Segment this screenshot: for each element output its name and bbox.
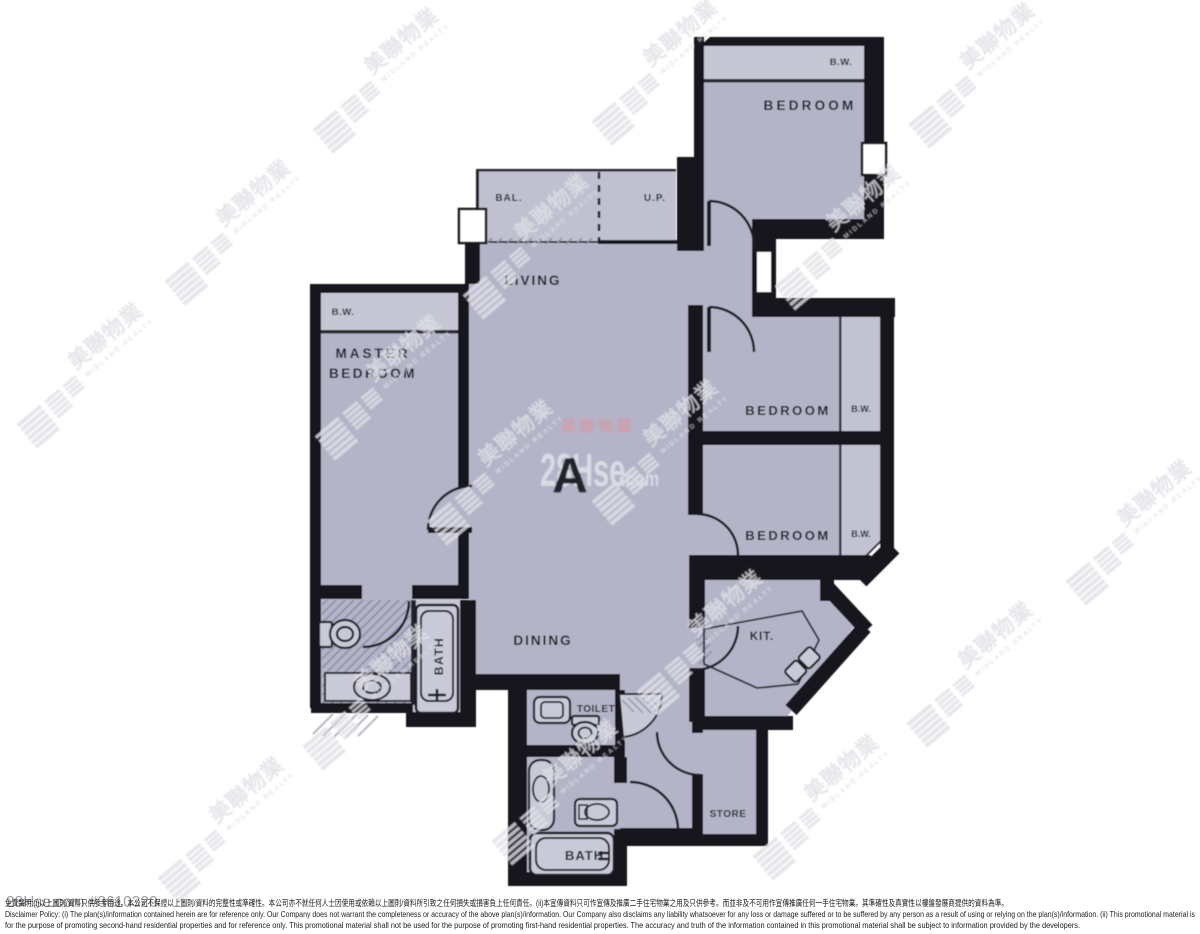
- svg-text:B.W.: B.W.: [851, 529, 871, 539]
- svg-text:B.W.: B.W.: [332, 307, 355, 318]
- svg-text:BEDROOM: BEDROOM: [764, 98, 857, 113]
- svg-text:TOILET: TOILET: [577, 704, 615, 715]
- svg-text:BEDROOM: BEDROOM: [745, 528, 830, 543]
- svg-text:U.P.: U.P.: [644, 193, 666, 204]
- svg-text:BEDROOM: BEDROOM: [745, 403, 830, 418]
- svg-text:for the purpose of promoting s: for the purpose of promoting second-hand…: [5, 920, 1080, 930]
- svg-text:KIT.: KIT.: [750, 631, 774, 643]
- svg-text:Disclaimer Policy: (i) The pla: Disclaimer Policy: (i) The plan(s)/infor…: [5, 909, 1195, 919]
- svg-text:BATH: BATH: [565, 848, 604, 863]
- svg-text:STORE: STORE: [710, 809, 747, 820]
- svg-text:美聯物業: 美聯物業: [561, 417, 635, 435]
- svg-text:A: A: [552, 449, 587, 503]
- svg-text:B.W.: B.W.: [830, 57, 853, 68]
- svg-text:.com: .com: [621, 467, 659, 490]
- svg-text:免責聲明:(i)以上圖則/資料只供參考用途。本公司不保證以上: 免責聲明:(i)以上圖則/資料只供參考用途。本公司不保證以上圖則/資料的完整性或…: [5, 897, 1008, 908]
- svg-text:DINING: DINING: [513, 633, 572, 648]
- svg-text:BAL.: BAL.: [495, 193, 522, 204]
- svg-text:B.W.: B.W.: [851, 404, 871, 414]
